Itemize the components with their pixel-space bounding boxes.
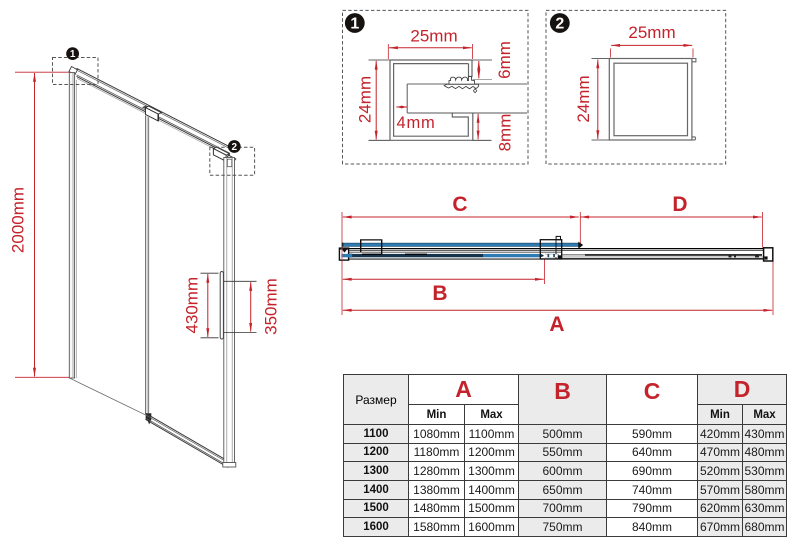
svg-text:B: B	[432, 282, 447, 305]
svg-text:6mm: 6mm	[495, 41, 514, 79]
svg-text:24mm: 24mm	[356, 76, 375, 123]
svg-text:350mm: 350mm	[262, 278, 281, 335]
svg-text:8mm: 8mm	[495, 114, 514, 152]
svg-text:A: A	[549, 313, 564, 336]
svg-text:C: C	[452, 193, 467, 216]
svg-text:24mm: 24mm	[574, 75, 593, 122]
svg-text:4mm: 4mm	[397, 114, 436, 132]
svg-text:1: 1	[70, 49, 76, 60]
svg-text:25mm: 25mm	[410, 27, 457, 46]
svg-text:25mm: 25mm	[628, 23, 675, 42]
svg-text:2: 2	[555, 16, 564, 33]
svg-text:2: 2	[232, 142, 238, 153]
svg-text:430mm: 430mm	[182, 277, 201, 334]
svg-text:2000mm: 2000mm	[8, 187, 27, 253]
svg-text:1: 1	[350, 16, 359, 33]
svg-text:D: D	[672, 193, 687, 216]
